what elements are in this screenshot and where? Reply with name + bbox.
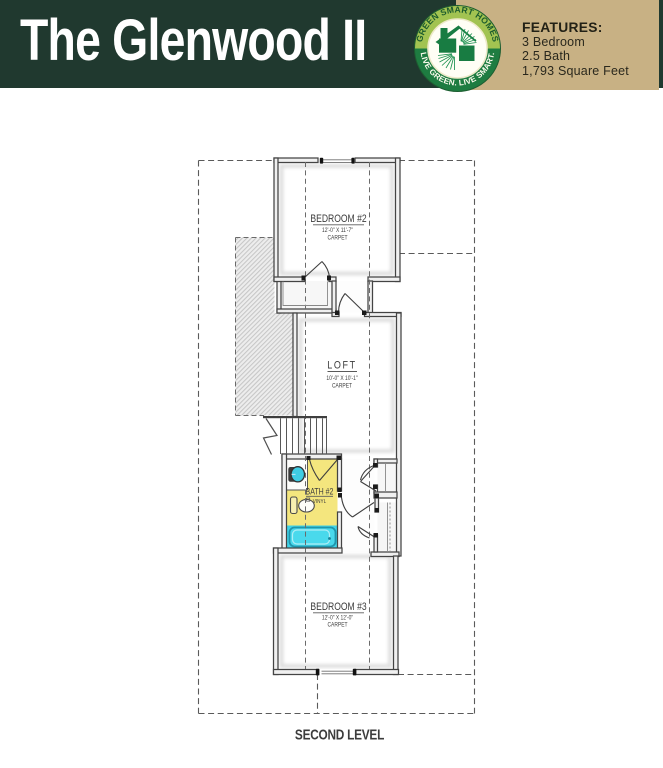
svg-text:10'-0" X 10'-1": 10'-0" X 10'-1" <box>326 376 357 383</box>
svg-text:CARPET: CARPET <box>327 235 348 242</box>
svg-text:CARPET: CARPET <box>327 622 348 629</box>
svg-text:LOFT: LOFT <box>327 360 357 372</box>
svg-text:VINYL: VINYL <box>313 498 326 505</box>
svg-text:BEDROOM #3: BEDROOM #3 <box>310 601 367 613</box>
svg-text:12'-0" X 11'-7": 12'-0" X 11'-7" <box>322 228 353 235</box>
svg-text:BATH #2: BATH #2 <box>306 487 334 497</box>
svg-text:BEDROOM #2: BEDROOM #2 <box>310 213 366 225</box>
svg-text:12'-0" X 12'-0": 12'-0" X 12'-0" <box>322 615 353 622</box>
svg-text:CARPET: CARPET <box>332 383 353 390</box>
svg-text:SECOND LEVEL: SECOND LEVEL <box>295 726 384 743</box>
